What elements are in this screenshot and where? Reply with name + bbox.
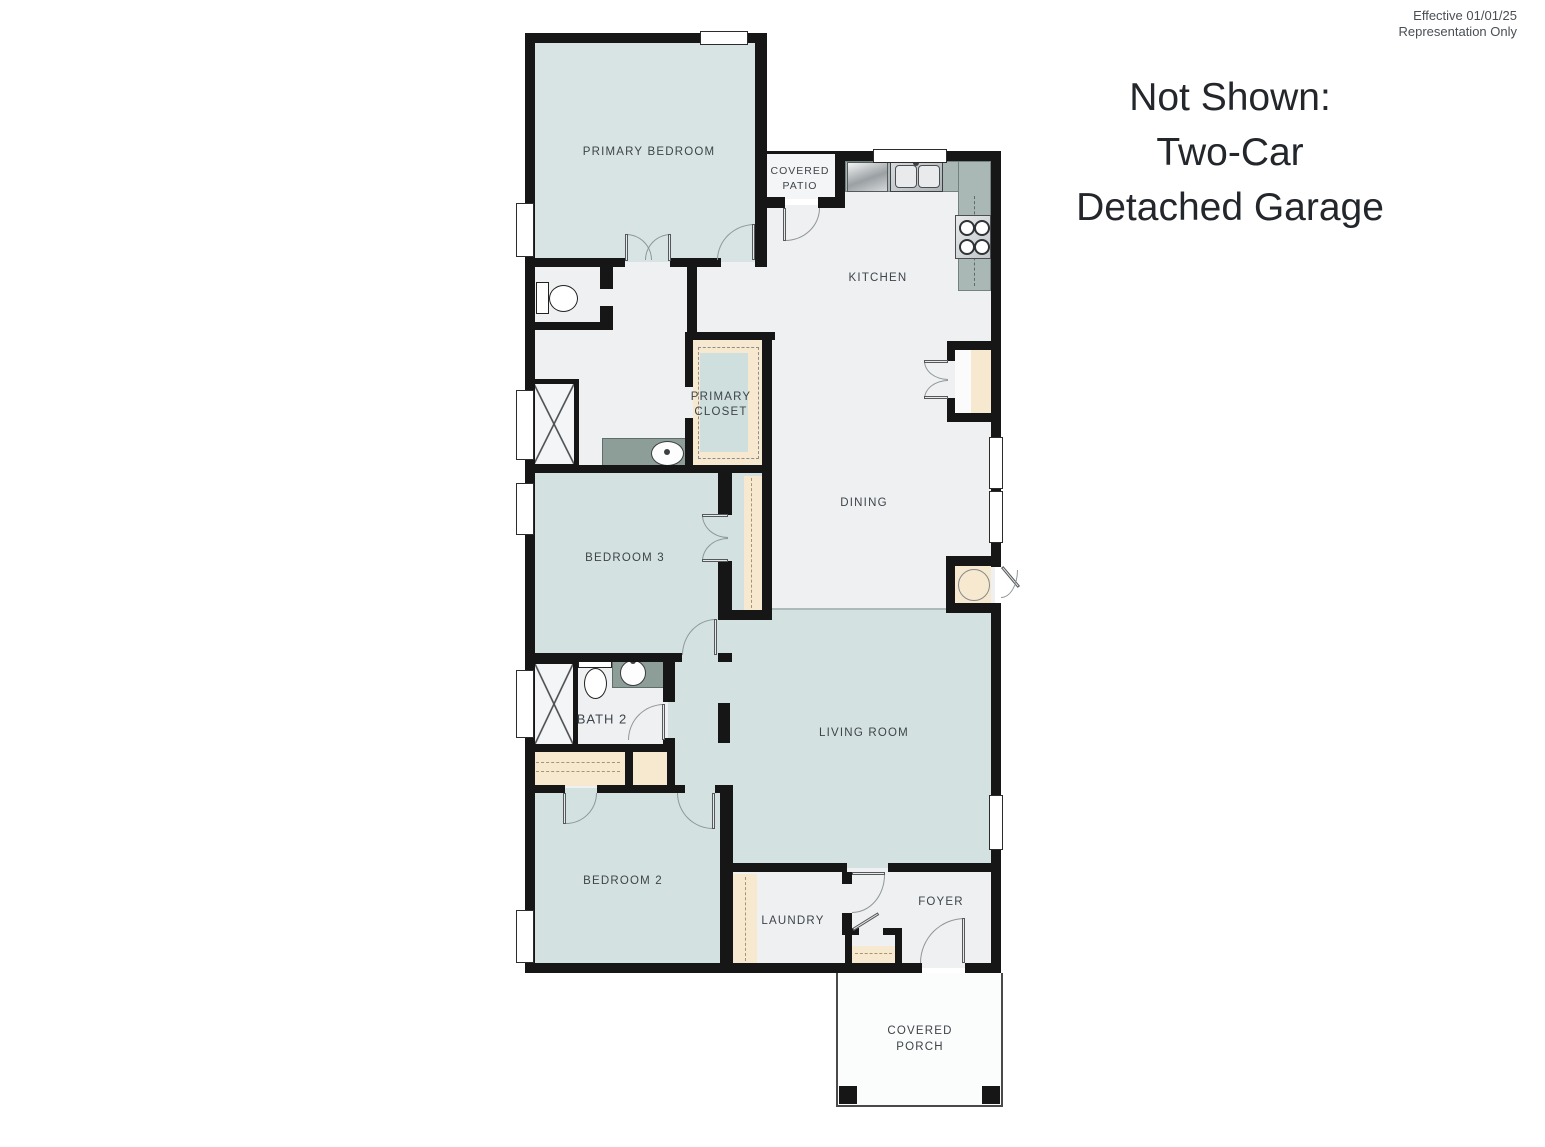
- wall: [718, 703, 730, 743]
- wall: [720, 793, 733, 972]
- label-primary-closet-2: CLOSET: [694, 406, 747, 418]
- wall: [525, 744, 675, 752]
- coat-closet-dash: [855, 953, 892, 954]
- door-leaf: [924, 396, 948, 399]
- linen-closet-shelf: [531, 752, 625, 786]
- wall: [687, 267, 697, 340]
- window-dining-right-1: [989, 437, 1003, 489]
- wall: [718, 653, 732, 662]
- burner-1: [959, 220, 975, 236]
- porch-post-left: [839, 1086, 857, 1104]
- bedroom-3-closet-shelf: [744, 476, 762, 610]
- effective-note: Effective 01/01/25 Representation Only: [1398, 8, 1517, 40]
- wall: [888, 863, 991, 872]
- sink-bowl-left: [895, 165, 917, 188]
- covered-porch-outline: [836, 973, 1003, 1107]
- effective-date: Effective 01/01/25: [1398, 8, 1517, 24]
- label-primary-bedroom: PRIMARY BEDROOM: [583, 146, 716, 158]
- wall: [842, 872, 852, 884]
- not-shown-note: Not Shown: Two-Car Detached Garage: [1055, 70, 1405, 235]
- linen-dash-2: [536, 771, 620, 772]
- label-living-room: LIVING ROOM: [819, 727, 909, 739]
- window-kitchen-top: [873, 149, 947, 163]
- porch-post-right: [982, 1086, 1000, 1104]
- door-leaf: [852, 872, 885, 875]
- wall: [755, 33, 767, 267]
- not-shown-line3: Detached Garage: [1055, 180, 1405, 235]
- wall: [718, 610, 772, 620]
- wall: [947, 341, 955, 361]
- not-shown-line2: Two-Car: [1055, 125, 1405, 180]
- door-leaf: [563, 793, 566, 824]
- bath-2-shower: [530, 659, 578, 749]
- wall: [883, 928, 902, 935]
- wall: [535, 322, 605, 330]
- window-bedroom-3-left: [516, 483, 534, 535]
- label-covered-porch-2: PORCH: [896, 1041, 944, 1053]
- water-heater-icon: [958, 569, 990, 601]
- pantry-shelf: [971, 350, 991, 413]
- wall: [947, 341, 1001, 350]
- window-bedroom-2-left: [516, 910, 534, 963]
- label-bedroom-2: BEDROOM 2: [583, 875, 663, 887]
- pantry-interior: [955, 350, 972, 413]
- wall: [818, 197, 845, 208]
- burner-4: [974, 239, 990, 255]
- coat-closet-shelf: [852, 946, 895, 963]
- primary-closet-shelf-dash: [698, 347, 759, 459]
- primary-sink-faucet-icon: [664, 449, 670, 455]
- wall: [525, 258, 625, 267]
- linen-dash-1: [536, 762, 620, 763]
- wall: [718, 561, 732, 612]
- wall: [755, 151, 845, 154]
- burner-2: [974, 220, 990, 236]
- sink-bowl-right: [918, 165, 940, 188]
- wall: [670, 258, 721, 267]
- door-leaf: [783, 208, 786, 241]
- door-leaf: [668, 234, 671, 261]
- label-bath-2: BATH 2: [577, 712, 628, 727]
- wall: [845, 935, 852, 967]
- bedroom-3-closet-dash: [751, 478, 752, 608]
- wall: [685, 340, 693, 387]
- wall: [947, 413, 1001, 422]
- wall: [663, 662, 675, 702]
- laundry-cabinet-dash: [745, 877, 746, 961]
- wall: [895, 935, 902, 967]
- door-leaf: [962, 918, 965, 963]
- door-leaf: [924, 360, 948, 363]
- primary-shower: [529, 379, 579, 469]
- window-living-right: [989, 795, 1003, 850]
- wall: [755, 197, 785, 208]
- door-leaf: [625, 234, 628, 261]
- wall: [965, 963, 1001, 973]
- wall: [991, 603, 1001, 973]
- window-bath-2-left: [516, 670, 534, 738]
- door-leaf: [752, 224, 755, 260]
- dishwasher: [847, 162, 888, 192]
- wc-toilet-bowl: [549, 285, 578, 312]
- floor-plan-page: Effective 01/01/25 Representation Only N…: [0, 0, 1545, 1147]
- door-arc: [1001, 570, 1018, 598]
- window-dining-right-2: [989, 491, 1003, 543]
- bath-2-toilet-bowl: [584, 668, 607, 699]
- door-leaf: [662, 704, 665, 740]
- range-stove: [955, 215, 991, 259]
- label-bedroom-3: BEDROOM 3: [585, 552, 665, 564]
- wall: [733, 863, 847, 872]
- wall: [715, 785, 733, 793]
- label-covered-patio-1: COVERED: [771, 165, 830, 177]
- representation-note: Representation Only: [1398, 24, 1517, 40]
- window-primary-bedroom-left: [516, 203, 534, 257]
- wall: [600, 267, 613, 289]
- hall-passage-floor: [668, 658, 723, 793]
- window-primary-bath-left: [516, 390, 534, 460]
- wall: [718, 473, 732, 515]
- door-leaf: [712, 793, 715, 829]
- floor-transition-line: [767, 608, 953, 610]
- label-dining: DINING: [840, 497, 887, 509]
- label-covered-patio-2: PATIO: [783, 180, 818, 192]
- door-leaf: [714, 619, 717, 655]
- door-leaf: [702, 514, 728, 517]
- wall: [947, 398, 955, 422]
- wall: [597, 785, 685, 793]
- wall: [525, 465, 772, 473]
- window-primary-bedroom-top: [700, 31, 748, 45]
- wall: [525, 653, 682, 662]
- label-laundry: LAUNDRY: [761, 915, 824, 927]
- label-covered-porch-1: COVERED: [887, 1025, 952, 1037]
- wall: [525, 785, 565, 793]
- wall: [762, 332, 772, 620]
- wc-toilet-tank: [536, 282, 549, 314]
- wall: [946, 556, 955, 613]
- door-leaf: [702, 559, 728, 562]
- label-kitchen: KITCHEN: [849, 272, 908, 284]
- label-primary-closet-1: PRIMARY: [691, 391, 752, 403]
- not-shown-line1: Not Shown:: [1055, 70, 1405, 125]
- burner-3: [959, 239, 975, 255]
- label-foyer: FOYER: [918, 896, 964, 908]
